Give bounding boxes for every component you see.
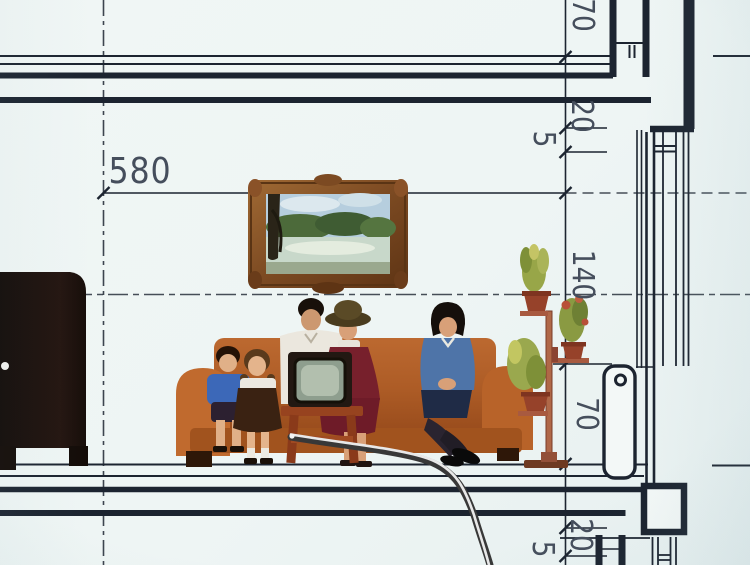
radiator-valve xyxy=(616,375,626,385)
landscape-painting xyxy=(266,193,396,274)
tv-cabinet xyxy=(0,272,88,470)
tv-cabinet-knob xyxy=(1,362,9,370)
radiator xyxy=(604,366,635,478)
dim-label-room-width: 580 xyxy=(108,154,171,190)
dim-label-140: 140 xyxy=(567,250,597,300)
potted-plant-top xyxy=(520,244,551,311)
dim-label-5-upper: 5 xyxy=(528,131,558,148)
dim-label-70-mid: 70 xyxy=(571,397,601,431)
dim-label-5-lower: 5 xyxy=(527,541,557,558)
dim-label-20-upper: 20 xyxy=(566,99,596,133)
drawing-canvas xyxy=(0,0,750,565)
dimension-tick-marks xyxy=(98,51,572,562)
potted-plant-right xyxy=(559,295,589,359)
dim-label-20-lower: 20 xyxy=(565,518,595,552)
architectural-section-drawing: 580 70 20 5 140 70 20 5 xyxy=(0,0,750,565)
framed-landscape-painting xyxy=(248,174,408,294)
dim-label-70-top: 70 xyxy=(567,0,597,32)
